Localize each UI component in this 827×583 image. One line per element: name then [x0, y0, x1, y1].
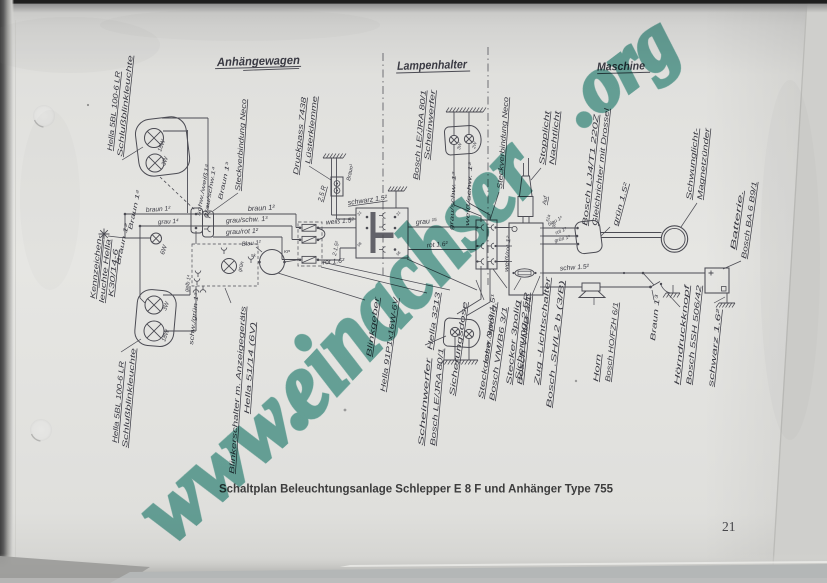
svg-text:grau 1⁴: grau 1⁴: [158, 218, 179, 226]
svg-text:Schaltplan Beleuchtungsanlage: Schaltplan Beleuchtungsanlage Schlepper …: [219, 483, 614, 496]
svg-text:braun 1²: braun 1²: [248, 203, 276, 213]
svg-text:KP: KP: [284, 249, 290, 254]
svg-text:Lampenhalter: Lampenhalter: [397, 57, 469, 73]
svg-text:5k: 5k: [251, 253, 257, 258]
svg-text:21: 21: [722, 519, 736, 534]
